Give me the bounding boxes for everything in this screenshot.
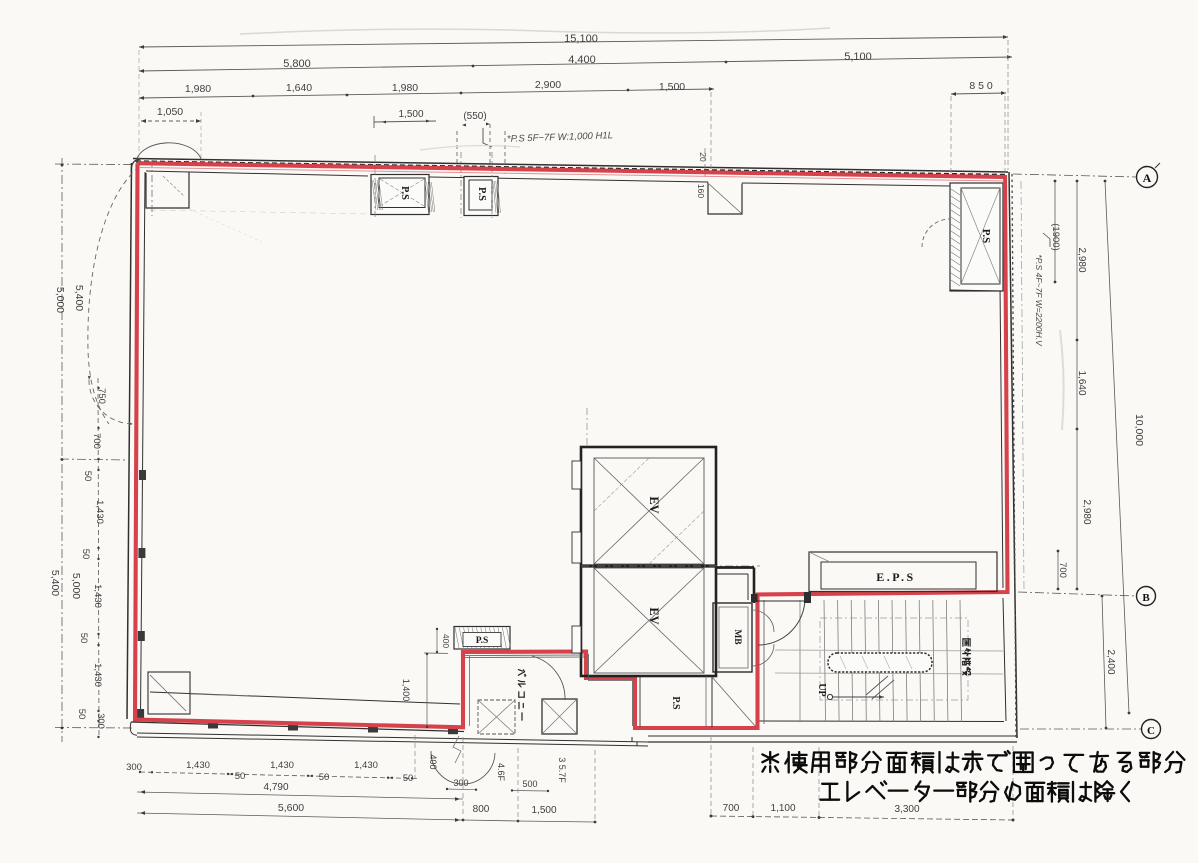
svg-text:700: 700	[91, 433, 102, 449]
svg-text:1,500: 1,500	[531, 805, 556, 816]
svg-text:500: 500	[522, 779, 537, 789]
svg-text:50: 50	[82, 471, 93, 482]
svg-text:1,430: 1,430	[92, 584, 103, 608]
svg-text:1,500: 1,500	[398, 109, 423, 120]
svg-text:EV: EV	[647, 496, 661, 513]
svg-text:1,430: 1,430	[354, 760, 378, 771]
svg-text:750: 750	[96, 388, 107, 404]
svg-text:1,430: 1,430	[92, 663, 103, 687]
svg-text:5,100: 5,100	[844, 51, 872, 63]
svg-text:1,100: 1,100	[770, 803, 795, 814]
svg-text:300: 300	[95, 713, 106, 729]
svg-text:160: 160	[696, 184, 706, 198]
svg-text:4.6F: 4.6F	[496, 763, 506, 782]
svg-text:5,400: 5,400	[49, 570, 61, 596]
svg-text:50: 50	[403, 773, 414, 784]
svg-text:400: 400	[428, 754, 438, 769]
svg-text:*P.S 4F~7F W=2200H.V: *P.S 4F~7F W=2200H.V	[1034, 254, 1044, 347]
svg-text:P.S: P.S	[476, 187, 487, 201]
svg-text:5,600: 5,600	[278, 802, 304, 814]
svg-text:P.S: P.S	[670, 696, 681, 710]
svg-text:1,980: 1,980	[392, 82, 418, 94]
svg-text:1,640: 1,640	[1076, 370, 1087, 395]
svg-text:8 5 0: 8 5 0	[969, 80, 993, 92]
svg-text:E.P.S: E.P.S	[876, 570, 915, 584]
svg-text:1,430: 1,430	[270, 760, 294, 771]
svg-text:5,400: 5,400	[73, 285, 85, 311]
svg-text:EV: EV	[647, 607, 661, 624]
svg-text:20: 20	[698, 152, 708, 162]
svg-text:2,400: 2,400	[1105, 649, 1116, 674]
svg-text:4,400: 4,400	[568, 54, 596, 66]
svg-text:1,640: 1,640	[286, 82, 312, 94]
svg-text:A: A	[1143, 171, 1152, 185]
svg-text:3,300: 3,300	[894, 804, 919, 815]
svg-text:400: 400	[441, 634, 451, 648]
svg-text:(1900): (1900)	[1050, 223, 1061, 250]
svg-text:1,400: 1,400	[401, 679, 411, 702]
svg-text:C: C	[1147, 725, 1155, 737]
svg-text:UP: UP	[816, 683, 827, 696]
svg-text:P.S: P.S	[476, 636, 489, 646]
svg-text:1,500: 1,500	[659, 81, 685, 93]
svg-text:300: 300	[453, 778, 468, 788]
svg-text:2,980: 2,980	[1076, 247, 1087, 272]
svg-text:50: 50	[80, 549, 91, 560]
svg-text:1,050: 1,050	[157, 106, 183, 118]
svg-text:50: 50	[319, 772, 330, 783]
svg-text:50: 50	[76, 709, 87, 720]
svg-text:P.S: P.S	[399, 186, 410, 200]
svg-text:5,000: 5,000	[54, 287, 66, 313]
svg-text:2,980: 2,980	[1081, 499, 1092, 524]
svg-text:10,000: 10,000	[1133, 414, 1145, 446]
svg-text:1,980: 1,980	[185, 83, 211, 95]
svg-text:2,900: 2,900	[535, 79, 561, 91]
svg-text:700: 700	[1057, 562, 1068, 578]
svg-text:B: B	[1142, 592, 1150, 604]
svg-text:800: 800	[473, 804, 490, 815]
svg-text:(550): (550)	[463, 111, 486, 122]
svg-text:3 5.7F: 3 5.7F	[557, 757, 567, 783]
svg-text:5,800: 5,800	[283, 58, 311, 70]
svg-text:1,430: 1,430	[94, 500, 105, 524]
svg-text:5,000: 5,000	[70, 573, 82, 599]
svg-text:MB: MB	[732, 629, 742, 645]
svg-text:50: 50	[235, 771, 246, 782]
svg-text:1,430: 1,430	[186, 760, 210, 771]
svg-text:P.S: P.S	[980, 229, 992, 244]
svg-text:50: 50	[78, 633, 89, 644]
svg-text:15,100: 15,100	[564, 33, 598, 45]
svg-text:300: 300	[126, 762, 142, 773]
svg-text:700: 700	[723, 803, 740, 814]
svg-text:4,790: 4,790	[263, 782, 288, 793]
